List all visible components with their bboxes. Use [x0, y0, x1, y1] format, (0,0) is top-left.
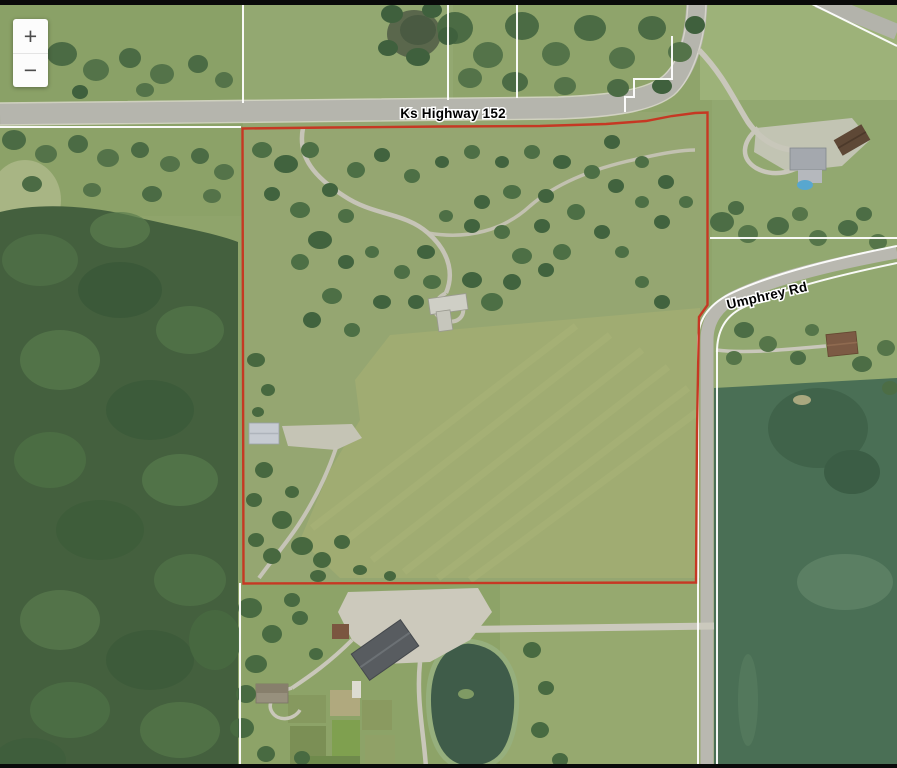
south-house: [256, 684, 288, 703]
map-zoom-control: + −: [13, 19, 48, 87]
top-border-bar: [0, 0, 897, 5]
swimming-pool: [797, 180, 813, 190]
south-shed-brown: [332, 624, 349, 639]
zoom-in-button[interactable]: +: [13, 19, 48, 53]
zoom-out-icon: −: [24, 59, 37, 82]
property-barn: [249, 423, 279, 444]
bottom-border-bar: [0, 764, 897, 768]
screenshot-root: { "map_labels": { "highway": "Ks Highway…: [0, 0, 897, 768]
south-shed-white: [352, 681, 361, 698]
pond-south: [428, 641, 516, 768]
forest-west: [0, 206, 241, 768]
highway-label: Ks Highway 152: [400, 106, 506, 121]
aerial-imagery[interactable]: Ks Highway 152 Umphrey Rd: [0, 0, 897, 768]
neighbor-house-e: [826, 331, 858, 356]
map-viewport[interactable]: Ks Highway 152 Umphrey Rd: [0, 0, 897, 768]
zoom-out-button[interactable]: −: [13, 53, 48, 87]
crop-field-east: [714, 378, 897, 768]
zoom-in-icon: +: [24, 25, 37, 48]
